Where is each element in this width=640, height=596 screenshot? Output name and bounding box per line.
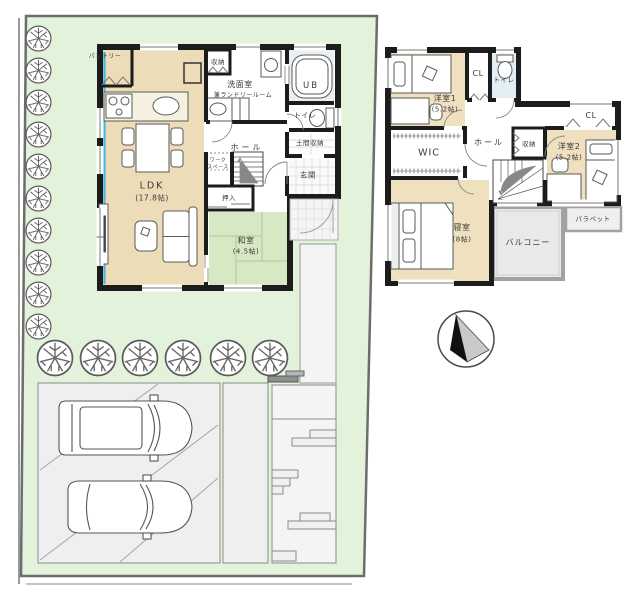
tree-icon — [26, 90, 51, 115]
room-label-balcony: バルコニー — [506, 239, 551, 247]
room-label-bath: UB — [303, 82, 319, 91]
room-label-storage-2f: 収納 — [522, 141, 536, 148]
room-label-entrance: 玄関 — [300, 171, 316, 179]
floorplan-drawing — [0, 0, 640, 596]
tree-icon — [166, 341, 201, 376]
gate-post-icon — [286, 371, 304, 376]
tree-icon — [26, 186, 51, 211]
bathtub-icon — [292, 55, 332, 98]
tree-icon — [26, 282, 51, 307]
dining-table — [136, 124, 169, 172]
tree-icon — [123, 341, 158, 376]
room-label-workspace: ワーク — [210, 159, 227, 164]
room-label-ldk: LDK — [140, 181, 165, 191]
chair-icon — [171, 128, 183, 145]
room-label-bedroom2: 洋室2 — [558, 143, 581, 151]
chair-icon — [122, 128, 134, 145]
floorplan-page: パントリー 収納 洗面室 兼ランドリールーム UB トイレ 土間収納 ホール 玄… — [0, 0, 640, 596]
room-label-pantry: パントリー — [89, 54, 122, 60]
tree-icon — [38, 341, 73, 376]
tree-icon — [26, 26, 51, 51]
room-label-washroom-sub: 兼ランドリールーム — [214, 93, 272, 99]
room-label-workspace-sub: スペース — [207, 166, 228, 171]
tree-icon — [26, 314, 51, 339]
room-label-toilet-1f: トイレ — [294, 113, 317, 120]
tree-icon — [26, 154, 51, 179]
room-label-japanese-room-size: (4.5帖) — [233, 249, 260, 256]
tree-icon — [26, 218, 51, 243]
toilet-icon — [326, 108, 334, 128]
tree-icon — [26, 250, 51, 275]
room-label-master-bedroom: 寝室 — [454, 224, 471, 232]
parking-area — [38, 383, 268, 563]
room-label-wic: WIC — [418, 148, 440, 158]
room-label-oshiire: 押入 — [222, 195, 236, 202]
sofa-icon — [189, 207, 197, 266]
chair-icon — [171, 150, 183, 167]
toilet-icon — [497, 55, 513, 62]
compass-icon — [438, 311, 494, 367]
room-label-closet1-2f: CL — [472, 70, 483, 78]
car-icon — [68, 475, 192, 539]
desk-icon — [391, 98, 429, 124]
room-label-bedroom2-size: (5.2帖) — [556, 155, 583, 162]
sink-icon — [153, 97, 179, 115]
room-label-hall-1f: ホール — [231, 144, 264, 152]
stairs-icon — [493, 160, 543, 203]
washing-machine-icon — [261, 51, 281, 77]
tree-icon — [211, 341, 246, 376]
room-label-closet2-2f: CL — [585, 112, 596, 120]
vanity-icon — [206, 98, 249, 121]
car-icon — [59, 395, 192, 461]
tree-icon — [81, 341, 116, 376]
room-label-closet-1f: 収納 — [211, 59, 225, 66]
room-label-washroom: 洗面室 — [227, 81, 253, 89]
room-label-master-bedroom-size: (8帖) — [453, 237, 472, 244]
room-label-bedroom1: 洋室1 — [434, 95, 457, 103]
room-label-parapet: パラペット — [576, 216, 611, 223]
room-label-ldk-size: (17.8帖) — [135, 194, 169, 202]
chair-icon — [122, 150, 134, 167]
tree-icon — [26, 122, 51, 147]
stairs-icon — [232, 152, 263, 186]
room-label-toilet-2f: トイレ — [494, 77, 515, 84]
room-label-doma-storage: 土間収納 — [296, 140, 324, 147]
bed-icon — [391, 203, 453, 269]
tree-icon — [253, 341, 288, 376]
desk-icon — [547, 174, 581, 201]
room-label-bedroom1-size: (5.2帖) — [432, 107, 459, 114]
room-label-japanese-room: 和室 — [238, 237, 255, 245]
bed-icon — [391, 55, 451, 93]
room-label-hall-2f: ホール — [474, 139, 504, 147]
stove-icon — [106, 94, 132, 118]
tree-icon — [26, 58, 51, 83]
gate-post-icon — [268, 376, 298, 382]
